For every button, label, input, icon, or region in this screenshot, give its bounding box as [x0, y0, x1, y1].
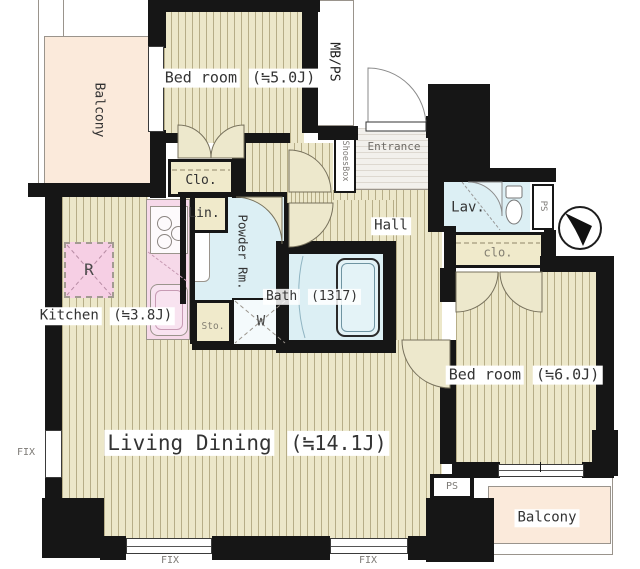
ps-upper-label: PS: [538, 201, 548, 212]
washer-label: W: [257, 313, 265, 331]
kitchen-name: Kitchen: [37, 307, 102, 325]
fix-window-bottom-left: [126, 538, 212, 554]
hall-name: Hall: [371, 217, 411, 235]
living-dining-name: Living Dining: [104, 430, 274, 456]
floor-plan: Balcony Bed room (≒5.0J) MB/PS Entrance …: [0, 0, 640, 569]
closet1-door-swing: [178, 125, 211, 158]
window-center-tick: [540, 462, 541, 472]
counter-dash-line: [148, 252, 188, 282]
fix-left-label: FIX: [17, 447, 35, 460]
fix-bottom-left-label: FIX: [161, 555, 179, 568]
bedroom2-window: [498, 464, 584, 477]
balcony-bottom-name: Balcony: [514, 509, 579, 527]
bedroom2-door-swing: [402, 340, 450, 388]
entrance-door-swing: [368, 68, 426, 126]
fix-bottom-right-label: FIX: [359, 555, 377, 568]
hall-label: Hall: [371, 217, 411, 235]
bedroom1-door-swing: [289, 150, 331, 192]
closet2-door-swing: [456, 272, 498, 312]
bedroom1-size: (≒5.0J): [249, 69, 318, 88]
kitchen-label: Kitchen (≒3.8J): [37, 307, 175, 325]
lavatory-label: Lav.: [451, 199, 485, 217]
powder-label: Powder Rm.: [236, 214, 251, 289]
mbps-label: MB/PS: [327, 42, 342, 81]
balcony-bottom-label: Balcony: [514, 509, 579, 527]
entrance-label: Entrance: [368, 140, 421, 154]
bedroom2-name: Bed room: [446, 366, 524, 385]
bath-size: (1317): [308, 289, 361, 305]
compass-icon: [559, 207, 601, 249]
toilet-bowl-icon: [506, 200, 522, 224]
fridge-label: R: [84, 260, 94, 280]
bedroom1-name: Bed room: [162, 69, 240, 88]
fix-window-left: [45, 430, 62, 478]
closet2-label: clo.: [484, 246, 513, 261]
ps-lower-label: PS: [446, 481, 458, 494]
living-dining-label: Living Dining (≒14.1J): [104, 430, 389, 456]
bath-name: Bath: [263, 289, 300, 305]
bedroom2-size: (≒6.0J): [533, 366, 602, 385]
storage-label: Sto.: [202, 321, 225, 333]
kitchen-size: (≒3.8J): [110, 307, 175, 325]
closet1-label: Clo.: [185, 173, 216, 189]
toilet-tank-icon: [506, 186, 522, 198]
closet2-door-swing: [500, 272, 542, 312]
living-dining-size: (≒14.1J): [287, 431, 389, 456]
living-door-swing: [289, 203, 333, 247]
bedroom1-window: [148, 46, 164, 132]
entrance-door-leaf: [366, 122, 426, 131]
linen-label: Lin.: [188, 206, 219, 222]
bedroom1-label: Bed room (≒5.0J): [162, 69, 319, 88]
bath-label: Bath (1317): [263, 289, 361, 305]
fix-window-bottom-right: [330, 538, 408, 554]
bedroom2-label: Bed room (≒6.0J): [446, 366, 603, 385]
closet1-door-swing: [211, 125, 244, 158]
shoesbox-label: ShoesBox: [340, 141, 350, 182]
balcony-top-label: Balcony: [92, 83, 107, 138]
